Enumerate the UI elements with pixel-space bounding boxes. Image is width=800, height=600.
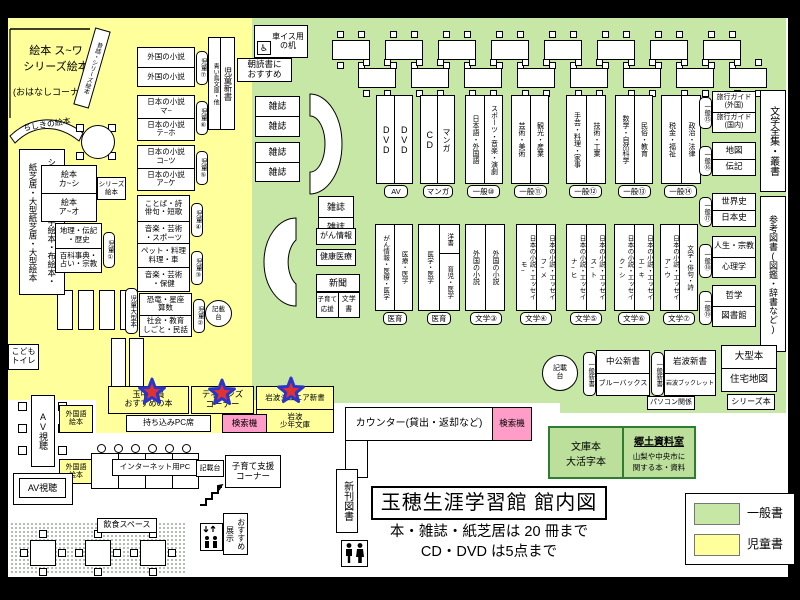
chair	[168, 549, 176, 557]
chair	[729, 31, 736, 38]
bookshelf	[57, 290, 73, 330]
chair	[416, 59, 423, 66]
bunko-large-print-cell: 文庫本 大活字本	[550, 428, 624, 477]
stool	[182, 444, 191, 453]
search-kiosk: 検索機	[222, 414, 267, 433]
chair	[649, 59, 656, 66]
chair	[708, 31, 715, 38]
stool	[97, 444, 106, 453]
shelf-jp-novels-ma: 日本の小説 マ~日本の小説 テ~ホ	[137, 95, 195, 141]
bookshelf	[99, 290, 115, 330]
chair	[734, 59, 741, 66]
shelf-tax-politics: 税金・福祉 政治・法律	[661, 95, 701, 184]
table	[464, 68, 502, 88]
magazine-shelf: 雑誌雑誌	[255, 96, 300, 137]
writing-desk-circle: 記載 台	[205, 300, 232, 327]
chair	[337, 62, 344, 69]
table	[438, 40, 476, 60]
circulation-counter: カウンター(貸出・返却など)	[345, 407, 493, 441]
tag-ippan-12: 一般⑫	[569, 185, 602, 198]
chair	[623, 31, 630, 38]
chair	[130, 549, 138, 557]
tag-ippan-19: 一般⑲	[699, 291, 712, 325]
shelf-chuko-bluebacks: 中公新書 ブルーバックス	[596, 350, 650, 396]
chair	[18, 402, 27, 411]
shelf-foreign-novels: 外国の小説 外国の小説	[465, 224, 505, 311]
shelf-picture-books: 絵本 カ~シ 絵本 ア~オ	[41, 165, 97, 222]
legend-row-children: 児童書	[694, 534, 786, 556]
table	[703, 40, 741, 60]
chair	[469, 59, 476, 66]
chair	[20, 549, 28, 557]
chair	[75, 549, 83, 557]
tag-ippan-13: 一般⑬	[618, 185, 651, 198]
tag-ippan-17: 一般⑰	[699, 197, 712, 227]
shelf-large-books-maps: 大型本住宅地図	[721, 345, 777, 392]
shelf-kotoba-poetry: ことば・詩 俳句・短歌音楽・芸術 ・スポーツ	[137, 195, 190, 247]
tag-ippan-shinsho: 一般新書	[651, 352, 664, 396]
bungakusho-cell: 文学書	[338, 293, 360, 317]
series-books-label: シリーズ本	[727, 394, 775, 410]
tag-iiku: 医育	[383, 312, 407, 325]
shelf-foreign-novels-children: 外国の小説外国の小説	[137, 47, 195, 87]
stool	[148, 444, 157, 453]
tag-manga: マンガ	[423, 185, 453, 198]
shelf-dinosaurs-society: 恐竜・星座 算数社会・教育 しごと・民話	[139, 293, 192, 337]
chair	[437, 59, 444, 66]
chair	[464, 31, 471, 38]
chair	[411, 31, 418, 38]
bookshelf	[78, 290, 94, 330]
reading-crescent-desk	[264, 218, 296, 306]
dining-space-label: 飲食スペース	[97, 518, 157, 533]
badge-jido-1: 児童①	[103, 232, 115, 268]
stool	[114, 444, 123, 453]
table	[491, 40, 529, 60]
shelf-science-folklore: 数学・自然科学 民俗・教育	[615, 95, 653, 184]
new-books-shelf: 新刊図書	[336, 469, 358, 533]
shelf-jp-novels-na-su: 日本の小説・エッセイ ナ~ヒ 日本の小説・エッセイ ス~ト	[566, 224, 606, 311]
chair	[543, 59, 550, 66]
lending-rule-av: CD・DVD は5点まで	[371, 543, 607, 561]
chair	[628, 59, 635, 66]
chair	[149, 568, 157, 576]
legend-label-general: 一般書	[747, 507, 783, 520]
tag-ippan-16: 一般⑯	[699, 146, 712, 176]
reading-crescent-desk	[310, 94, 342, 194]
shelf-world-japan-history: 世界史日本史	[712, 193, 756, 227]
chair	[443, 31, 450, 38]
chair	[76, 152, 84, 160]
chair	[496, 31, 503, 38]
tag-ippan-shinsho: 一般新書	[583, 352, 596, 396]
legend: 一般書 児童書	[685, 493, 795, 565]
dining-table	[30, 540, 56, 566]
shelf-jp-novels-ku-e: 日本の小説・エッセイ ク~シ 日本の小説・エッセイ エ~キ	[614, 224, 654, 311]
shelf-literature-collection: 文学全集・叢書	[760, 90, 786, 192]
shelf-cancer-medical: がん情報・医療・医学 医療・医学	[375, 224, 413, 311]
lending-rule-books: 本・雑誌・紙芝居は 20 冊まで	[371, 523, 607, 541]
tag-ippan-11: 一般⑪	[514, 185, 547, 198]
chair	[655, 31, 662, 38]
wheelchair-desk-label: 車イス用 の机	[272, 33, 304, 51]
badge-jido-3: 児童③	[191, 251, 203, 285]
dining-table	[85, 540, 111, 566]
chair	[363, 59, 370, 66]
map-title: 玉穂生涯学習館 館内図	[371, 486, 607, 520]
tag-children-large-books: 児童大型本	[125, 288, 138, 334]
toilet-icon	[341, 540, 368, 567]
chair	[549, 31, 556, 38]
tag-bungaku-6: 文学⑥	[618, 312, 650, 325]
writing-desk-circle: 記載 台	[542, 355, 578, 391]
shelf-dvd: DVD DVD	[376, 95, 413, 184]
chair	[384, 59, 391, 66]
byod-pc-seats: 持ち込みPC席	[126, 415, 211, 432]
chair	[702, 90, 709, 97]
shelf-medicine-childcare: 医学・医学 洋書 育児・医学	[418, 224, 460, 311]
internet-pc-label: インターネット用PC	[112, 459, 198, 476]
shelf-pets-cooking: ペット・料理 料理・車音楽・芸術 ・保健	[137, 243, 190, 292]
legend-swatch-children	[694, 534, 740, 556]
round-table	[81, 125, 115, 159]
shelf-aoitori-bunko: 青い鳥文庫・他 児童新書	[208, 37, 235, 130]
tag-ippan-10: 一般⑩	[467, 185, 500, 198]
shelf-maps-biography: 地図伝記	[712, 142, 756, 176]
chair	[39, 568, 47, 576]
cancer-info-shelf: がん情報	[316, 228, 356, 245]
table	[332, 40, 370, 60]
tamaho-staff-recommend-box: 玉中職員 おすすめの本	[108, 386, 189, 414]
storytime-title-1: 絵本 ス~ワ	[16, 44, 96, 58]
chair	[602, 31, 609, 38]
chair	[39, 530, 47, 538]
shelf-language-performing-arts: 日本語・外国語 スポーツ・音楽・演劇	[465, 95, 503, 184]
wheelchair-icon: ♿	[257, 41, 271, 55]
shelf-cd-manga: CD マンガ	[420, 95, 455, 184]
magazine-shelf: 雑誌雑誌	[255, 142, 300, 182]
chair	[596, 59, 603, 66]
tag-ippan-18: 一般⑱	[699, 244, 712, 278]
local-history-room-title: 郷土資料室	[634, 433, 684, 448]
legend-swatch-general	[694, 503, 740, 525]
chair	[517, 31, 524, 38]
table	[729, 68, 767, 88]
av-viewing-table: AV視聴	[31, 395, 55, 467]
table	[676, 68, 714, 88]
pc-related-label: パソコン関係	[647, 396, 695, 410]
floor-map: 絵本 ス~ワ シリーズ絵本 (おはなしコーナー) 昔話・シリーズ絵本 ちしきの絵…	[0, 0, 800, 600]
table	[517, 68, 555, 88]
chair	[113, 549, 121, 557]
tag-ippan-14: 一般⑭	[664, 185, 697, 198]
chair	[702, 59, 709, 66]
bunko-local-room: 文庫本 大活字本 郷土資料室 山梨や中央市に 関する本・資料	[548, 426, 696, 479]
shelf-geography-encyclopedia: 地理・伝記 ・歴史百科事典・ 占い・宗教	[55, 223, 102, 273]
chair	[337, 31, 344, 38]
stool	[131, 444, 140, 453]
tag-av: AV	[384, 185, 408, 198]
shelf-childcare-medicine: 育児・医学	[440, 253, 460, 310]
shelf-western-books: 洋書	[440, 225, 460, 253]
badge-jido-7: 児童⑦	[196, 51, 208, 85]
newspaper-shelf: 新聞	[316, 274, 360, 292]
av-booth-label: AV視聴	[19, 478, 66, 498]
table	[570, 68, 608, 88]
writing-desk-label: 記載台	[196, 460, 224, 477]
chair	[94, 568, 102, 576]
chair	[363, 90, 370, 97]
badge-jido-5: 児童⑤	[196, 151, 208, 185]
badge-jido-2: 児童②	[193, 299, 205, 333]
chair	[358, 31, 365, 38]
stairs-icon	[197, 481, 225, 507]
tag-ippan-15: 一般⑮	[699, 97, 712, 129]
table	[597, 40, 635, 60]
legend-row-general: 一般書	[694, 503, 786, 525]
chair	[58, 446, 67, 455]
local-history-room-desc: 山梨や中央市に 関する本・資料	[633, 451, 686, 473]
tag-iiku: 医育	[427, 312, 451, 325]
table	[411, 68, 449, 88]
asadoku-recommend-box: 朝読書に おすすめ	[237, 58, 292, 82]
chair	[570, 31, 577, 38]
shelf-philosophy-library: 哲学図書館	[712, 285, 756, 327]
shelf-art-tourism: 芸術・美術 観光・産業	[511, 95, 549, 184]
legend-label-children: 児童書	[747, 538, 783, 551]
tag-bungaku-3: 文学③	[470, 312, 502, 325]
table	[358, 68, 396, 88]
wheelchair-desk: ♿ 車イス用 の机	[254, 25, 308, 58]
chair	[18, 446, 27, 455]
table	[544, 40, 582, 60]
chair	[575, 59, 582, 66]
tag-bungaku-5: 文学⑤	[570, 312, 602, 325]
chair	[755, 59, 762, 66]
teens-corner-box: ティーンズ コーナー	[191, 386, 254, 414]
foreign-picture-books-label: 外国語 絵本	[59, 405, 93, 433]
stool	[165, 444, 174, 453]
shelf-iwanami-shinsho: 岩波新書 岩波ブックレット	[664, 350, 716, 396]
dining-table	[140, 540, 166, 566]
shelf-crafts-technology: 手芸・料理・家事 技術・工業	[566, 95, 606, 184]
health-medical-shelf: 健康医療	[316, 249, 356, 266]
shelf-reference-books: 参考図書(図鑑・辞書など)	[760, 196, 786, 352]
bookshelf	[111, 338, 126, 390]
shelf-travel-guides: 旅行ガイド (外国)旅行ガイド (国内)	[712, 91, 756, 133]
table	[650, 40, 688, 60]
kosodate-literature-shelf: 子育て 応援 文学書	[316, 292, 360, 318]
recommended-display-box: おすすめ 展示	[223, 513, 248, 555]
kids-toilet: こども トイレ	[8, 344, 39, 370]
shelf-series-ehon-tag: シリーズ 絵本	[97, 177, 126, 200]
bookshelf	[129, 338, 144, 390]
kosodate-ouen-cell: 子育て 応援	[317, 293, 338, 317]
chair	[390, 31, 397, 38]
iwanami-shelf: 岩波ジュニア新書 岩波 少年文庫	[256, 386, 334, 433]
chair	[58, 549, 66, 557]
elevator-icon	[200, 523, 223, 551]
shelf-jp-novels-a-poetry: 日本の小説・エッセイ ア~ウ 文学・俳句・詩	[660, 224, 698, 311]
chair	[522, 59, 529, 66]
tag-bungaku-7: 文学⑦	[663, 312, 695, 325]
tag-bungaku-4: 文学④	[520, 312, 552, 325]
kosodate-support-corner: 子育て支援 コーナー	[225, 455, 281, 488]
shelf-jp-novels-ko: 日本の小説 コ~ツ日本の小説 ア~ケ	[137, 145, 195, 191]
chair	[490, 59, 497, 66]
badge-jido-4: 児童④	[191, 203, 203, 237]
table	[623, 68, 661, 88]
shelf-jp-novels-mo-fu: 日本の小説・エッセイ モ~ 日本の小説・エッセイ フ~メ	[516, 224, 556, 311]
shelf-life-religion-psychology: 人生・宗教心理学	[712, 236, 756, 278]
badge-jido-6: 児童⑥	[196, 101, 208, 135]
search-kiosk: 検索機	[492, 407, 532, 441]
chair	[676, 31, 683, 38]
table	[385, 40, 423, 60]
chair	[681, 59, 688, 66]
chair	[18, 424, 27, 433]
